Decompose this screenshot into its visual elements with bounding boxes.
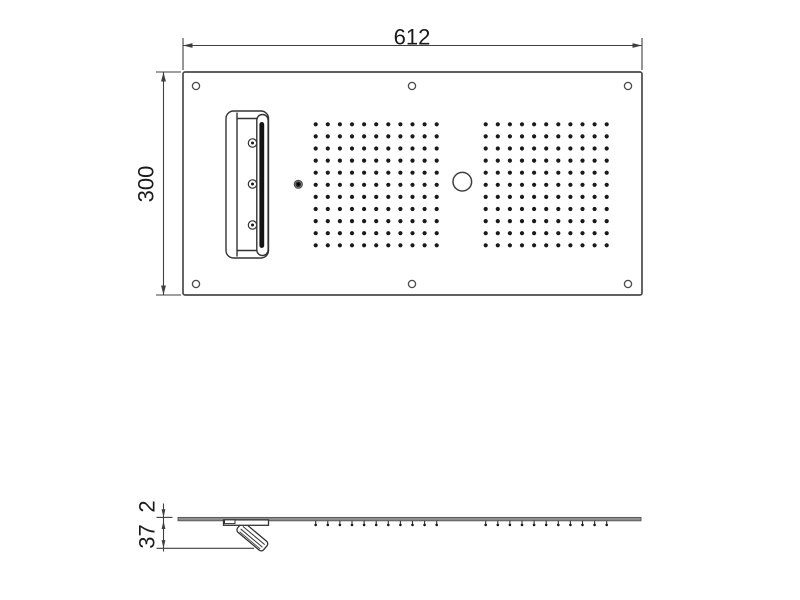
nozzle-dot <box>484 171 488 175</box>
mounting-hole <box>408 280 415 287</box>
nozzle-dot <box>326 195 330 199</box>
spout-mount-notch <box>225 520 236 524</box>
nozzle-dot <box>338 122 342 126</box>
nozzle-dot <box>386 231 390 235</box>
nozzle-dot <box>532 171 536 175</box>
nozzle-dot <box>362 159 366 163</box>
nozzle-dot <box>386 219 390 223</box>
nozzle-dot <box>484 146 488 150</box>
nozzle-dot <box>568 231 572 235</box>
nozzle-dot <box>386 243 390 247</box>
nozzle-dot <box>593 219 597 223</box>
nozzle-dot <box>484 159 488 163</box>
nozzle-dot <box>423 134 427 138</box>
nozzle-dot <box>544 195 548 199</box>
nozzle-dot <box>423 183 427 187</box>
nozzle-dot <box>350 159 354 163</box>
nozzle-dot <box>580 146 584 150</box>
nozzle-dot <box>398 219 402 223</box>
nozzle-dot <box>314 207 318 211</box>
nozzle-dot <box>423 243 427 247</box>
nozzle-dot <box>410 134 414 138</box>
nozzle-dot <box>386 146 390 150</box>
nozzle-dot <box>423 159 427 163</box>
nozzle-dot <box>520 171 524 175</box>
nozzle-tick-dot <box>387 524 390 527</box>
nozzle-tick-dot <box>484 524 487 527</box>
nozzle-dot <box>410 146 414 150</box>
nozzle-tick-dot <box>351 524 354 527</box>
arrow-right-icon <box>633 43 643 48</box>
technical-drawing: 612 300 <box>0 0 800 600</box>
screw-center-icon <box>251 142 254 145</box>
nozzle-dot <box>350 183 354 187</box>
nozzle-dot <box>568 159 572 163</box>
arrow-up-icon <box>161 72 166 82</box>
nozzle-dot <box>435 219 439 223</box>
nozzle-dot <box>338 171 342 175</box>
nozzle-dot <box>532 183 536 187</box>
nozzle-dot <box>496 243 500 247</box>
nozzle-dot <box>326 243 330 247</box>
nozzle-dot <box>556 134 560 138</box>
nozzle-dot <box>496 146 500 150</box>
nozzle-tick-dot <box>557 524 560 527</box>
nozzle-dot <box>350 207 354 211</box>
nozzle-dot <box>362 195 366 199</box>
nozzle-tick-dot <box>423 524 426 527</box>
nozzle-dot <box>410 122 414 126</box>
nozzle-dot <box>593 183 597 187</box>
nozzle-dot <box>568 243 572 247</box>
nozzle-dot <box>593 122 597 126</box>
screw-center-icon <box>251 183 254 186</box>
nozzle-dot <box>398 231 402 235</box>
nozzle-dot <box>605 195 609 199</box>
nozzle-dot <box>532 122 536 126</box>
nozzle-dot <box>398 207 402 211</box>
nozzle-dot <box>374 159 378 163</box>
nozzle-dot <box>326 122 330 126</box>
nozzle-dot <box>423 122 427 126</box>
nozzle-tick-dot <box>339 524 342 527</box>
nozzle-tick-dot <box>509 524 512 527</box>
nozzle-tick-dot <box>497 524 500 527</box>
nozzle-dot <box>496 207 500 211</box>
nozzle-dot <box>580 243 584 247</box>
nozzle-tick-dot <box>533 524 536 527</box>
nozzle-dot <box>423 207 427 211</box>
waterfall-slot <box>259 122 264 248</box>
nozzle-dot <box>508 146 512 150</box>
nozzle-dot <box>496 122 500 126</box>
nozzle-dot <box>374 171 378 175</box>
nozzle-dot <box>568 183 572 187</box>
nozzle-dot <box>386 171 390 175</box>
diverter-knob <box>294 180 303 189</box>
nozzle-dot <box>435 195 439 199</box>
nozzle-dot <box>532 195 536 199</box>
nozzle-dot <box>520 183 524 187</box>
nozzle-dot <box>350 231 354 235</box>
nozzle-dot <box>605 231 609 235</box>
nozzle-dot <box>508 243 512 247</box>
nozzle-dot <box>374 207 378 211</box>
nozzle-dot <box>520 134 524 138</box>
nozzle-dot <box>484 195 488 199</box>
nozzle-dot <box>374 195 378 199</box>
top-view <box>183 72 642 295</box>
nozzle-dot <box>508 171 512 175</box>
nozzle-dot <box>556 159 560 163</box>
screw-center-icon <box>251 224 254 227</box>
nozzle-dot <box>593 146 597 150</box>
nozzle-dot <box>520 146 524 150</box>
nozzle-dot <box>484 219 488 223</box>
nozzle-dot <box>532 146 536 150</box>
nozzle-dot <box>484 183 488 187</box>
nozzle-dot <box>484 122 488 126</box>
nozzle-tick-dot <box>363 524 366 527</box>
nozzle-dot <box>580 231 584 235</box>
nozzle-tick-dot <box>327 524 330 527</box>
arrow-down-icon <box>161 286 166 296</box>
arrow-projection-icon <box>162 540 166 548</box>
nozzle-dot <box>508 207 512 211</box>
nozzle-dot <box>398 122 402 126</box>
nozzle-dot <box>496 171 500 175</box>
nozzle-dot <box>580 122 584 126</box>
nozzle-dot <box>544 183 548 187</box>
nozzle-dot <box>398 159 402 163</box>
nozzle-dot <box>338 134 342 138</box>
nozzle-dot <box>314 171 318 175</box>
nozzle-dot <box>338 219 342 223</box>
nozzle-dot <box>326 159 330 163</box>
nozzle-dot <box>568 219 572 223</box>
nozzle-dot <box>556 171 560 175</box>
nozzle-dot <box>605 122 609 126</box>
nozzle-dot <box>556 207 560 211</box>
nozzle-dot <box>374 134 378 138</box>
nozzle-tick-dot <box>545 524 548 527</box>
nozzle-dot <box>350 171 354 175</box>
nozzle-dot <box>568 195 572 199</box>
nozzle-dot <box>568 134 572 138</box>
spout-angled-body <box>236 522 269 553</box>
nozzle-dot <box>362 171 366 175</box>
nozzle-dot <box>593 243 597 247</box>
nozzle-dot <box>605 219 609 223</box>
nozzle-dot <box>544 219 548 223</box>
nozzle-dot <box>338 195 342 199</box>
mounting-hole <box>624 82 631 89</box>
nozzle-dot <box>544 122 548 126</box>
nozzle-dot <box>580 195 584 199</box>
nozzle-dot <box>398 134 402 138</box>
nozzle-dot <box>314 219 318 223</box>
nozzle-dot <box>544 134 548 138</box>
nozzle-dot <box>605 243 609 247</box>
nozzle-tick-dot <box>435 524 438 527</box>
nozzle-dot <box>508 134 512 138</box>
nozzle-dot <box>496 183 500 187</box>
nozzle-dot <box>410 159 414 163</box>
nozzle-dot <box>350 195 354 199</box>
nozzle-dot <box>520 122 524 126</box>
nozzle-dot <box>350 219 354 223</box>
center-port-circle <box>453 172 472 191</box>
nozzle-dot <box>410 231 414 235</box>
nozzle-dot <box>556 219 560 223</box>
nozzle-dot <box>374 219 378 223</box>
nozzle-dot <box>435 207 439 211</box>
nozzle-dot <box>496 195 500 199</box>
nozzle-dot <box>314 159 318 163</box>
nozzle-dot <box>374 183 378 187</box>
nozzle-dot <box>580 171 584 175</box>
nozzle-dot <box>544 171 548 175</box>
nozzle-dot <box>386 207 390 211</box>
nozzle-dot <box>520 219 524 223</box>
nozzle-tick-dot <box>593 524 596 527</box>
nozzle-dot <box>593 207 597 211</box>
nozzle-dot <box>362 207 366 211</box>
nozzle-dot <box>532 231 536 235</box>
nozzle-dot <box>605 159 609 163</box>
nozzle-dot <box>410 183 414 187</box>
nozzle-dot <box>593 195 597 199</box>
nozzle-tick-dot <box>569 524 572 527</box>
nozzle-dot <box>556 195 560 199</box>
nozzle-dot <box>568 171 572 175</box>
nozzle-dot <box>386 195 390 199</box>
nozzle-dot <box>410 207 414 211</box>
nozzle-dot <box>338 231 342 235</box>
nozzle-dot <box>605 183 609 187</box>
nozzle-dot <box>326 171 330 175</box>
nozzle-dot <box>326 146 330 150</box>
nozzle-dot <box>423 195 427 199</box>
nozzle-dot <box>435 171 439 175</box>
nozzle-dot <box>435 122 439 126</box>
nozzle-dot <box>423 171 427 175</box>
nozzle-dot <box>386 183 390 187</box>
nozzle-dot <box>496 134 500 138</box>
nozzle-dot <box>580 134 584 138</box>
dim-width: 612 <box>183 25 642 71</box>
nozzle-tick-dot <box>411 524 414 527</box>
nozzle-dot <box>532 207 536 211</box>
nozzle-dot <box>605 171 609 175</box>
nozzle-dot <box>496 159 500 163</box>
nozzle-dot <box>423 231 427 235</box>
nozzle-dot <box>520 231 524 235</box>
nozzle-tick-dot <box>399 524 402 527</box>
arrow-thickness-top-icon <box>162 509 166 517</box>
nozzle-dot <box>520 159 524 163</box>
nozzle-dot <box>580 207 584 211</box>
nozzle-dot <box>532 243 536 247</box>
nozzle-dot <box>362 243 366 247</box>
nozzle-dot <box>410 219 414 223</box>
nozzle-dot <box>362 146 366 150</box>
nozzle-dot <box>605 146 609 150</box>
nozzle-dot <box>544 231 548 235</box>
nozzle-dot <box>398 183 402 187</box>
nozzle-dot <box>374 243 378 247</box>
nozzle-dot <box>484 231 488 235</box>
dim-width-label: 612 <box>394 25 431 50</box>
nozzle-dot <box>374 122 378 126</box>
nozzle-dot <box>423 146 427 150</box>
nozzle-dot <box>338 183 342 187</box>
nozzle-dot <box>362 134 366 138</box>
nozzle-tick-dot <box>581 524 584 527</box>
dim-projection-label: 37 <box>135 524 160 548</box>
nozzle-dot <box>326 219 330 223</box>
nozzle-dot <box>338 207 342 211</box>
nozzle-dot <box>314 146 318 150</box>
nozzle-dot <box>386 159 390 163</box>
nozzle-tick-dot <box>314 524 317 527</box>
nozzle-dot <box>362 183 366 187</box>
dim-height: 300 <box>134 72 182 295</box>
nozzle-dot <box>410 195 414 199</box>
nozzle-dot <box>362 219 366 223</box>
nozzle-dot <box>593 171 597 175</box>
nozzle-dot <box>580 219 584 223</box>
nozzle-dot <box>484 134 488 138</box>
nozzle-dot <box>508 183 512 187</box>
waterfall-spout <box>226 111 269 258</box>
nozzle-dot <box>398 195 402 199</box>
nozzle-dot <box>435 183 439 187</box>
nozzle-dot <box>435 146 439 150</box>
nozzle-dot <box>496 231 500 235</box>
nozzle-dot <box>326 134 330 138</box>
dim-height-label: 300 <box>134 166 159 203</box>
nozzle-dot <box>544 159 548 163</box>
nozzle-dot <box>508 231 512 235</box>
nozzle-dot <box>435 134 439 138</box>
mounting-hole <box>624 280 631 287</box>
nozzle-dot <box>508 159 512 163</box>
nozzle-dot <box>314 195 318 199</box>
nozzle-dot <box>362 122 366 126</box>
nozzle-dot <box>362 231 366 235</box>
nozzle-dot <box>520 243 524 247</box>
nozzle-dot <box>580 159 584 163</box>
nozzle-dot <box>338 243 342 247</box>
nozzle-dot <box>508 219 512 223</box>
nozzle-dot <box>410 243 414 247</box>
nozzle-dot <box>484 243 488 247</box>
nozzle-dot <box>398 171 402 175</box>
nozzle-dot <box>605 134 609 138</box>
nozzle-dot <box>556 231 560 235</box>
nozzle-dot <box>398 146 402 150</box>
nozzle-dot <box>374 231 378 235</box>
nozzle-dot <box>350 243 354 247</box>
drawing-page: 612 300 <box>0 0 800 600</box>
nozzle-dot <box>593 159 597 163</box>
nozzle-dot <box>508 195 512 199</box>
nozzle-tick-dot <box>521 524 524 527</box>
nozzle-dot <box>520 195 524 199</box>
nozzle-dot <box>398 243 402 247</box>
nozzle-dot <box>544 146 548 150</box>
nozzle-dot <box>435 159 439 163</box>
arrow-left-icon <box>183 43 193 48</box>
nozzle-dot <box>314 183 318 187</box>
mounting-hole <box>192 280 199 287</box>
nozzle-dot <box>326 207 330 211</box>
spout-profile <box>224 520 270 552</box>
nozzle-dot <box>338 159 342 163</box>
nozzle-dot <box>556 183 560 187</box>
nozzle-dot <box>314 134 318 138</box>
nozzle-dot <box>532 219 536 223</box>
spout-angled-outline <box>236 522 269 553</box>
nozzle-dot <box>350 134 354 138</box>
nozzle-dot <box>314 243 318 247</box>
nozzle-dot <box>556 122 560 126</box>
nozzle-dot <box>556 146 560 150</box>
nozzle-dot <box>350 146 354 150</box>
nozzle-tick-dot <box>605 524 608 527</box>
nozzle-dot <box>580 183 584 187</box>
nozzle-dot <box>520 207 524 211</box>
nozzle-dot <box>350 122 354 126</box>
nozzle-dot <box>435 243 439 247</box>
nozzle-dot <box>593 134 597 138</box>
nozzle-tick-dot <box>375 524 378 527</box>
nozzle-dot <box>568 146 572 150</box>
nozzle-dot <box>508 122 512 126</box>
nozzle-ticks <box>314 521 608 526</box>
nozzle-dot <box>314 122 318 126</box>
nozzle-dot <box>556 243 560 247</box>
nozzle-dot <box>326 231 330 235</box>
arrow-thickness-bottom-icon <box>162 521 166 529</box>
nozzle-dot <box>532 134 536 138</box>
nozzle-dot <box>568 207 572 211</box>
nozzle-dot <box>435 231 439 235</box>
knob-center <box>297 183 300 186</box>
nozzle-dot <box>314 231 318 235</box>
side-view: 2 37 <box>135 500 642 552</box>
nozzle-dot <box>338 146 342 150</box>
nozzle-dot <box>496 219 500 223</box>
nozzle-dot <box>484 207 488 211</box>
nozzle-dot <box>326 183 330 187</box>
nozzle-dot <box>593 231 597 235</box>
nozzle-dot <box>544 243 548 247</box>
nozzle-dot <box>374 146 378 150</box>
nozzle-dot <box>568 122 572 126</box>
mounting-hole <box>192 82 199 89</box>
nozzle-dot <box>386 134 390 138</box>
nozzle-dot <box>605 207 609 211</box>
dim-thickness-label: 2 <box>135 500 160 512</box>
mounting-hole <box>408 82 415 89</box>
nozzle-dot <box>423 219 427 223</box>
nozzle-dot <box>544 207 548 211</box>
nozzle-dot <box>410 171 414 175</box>
nozzle-dot <box>386 122 390 126</box>
nozzle-dot <box>532 159 536 163</box>
